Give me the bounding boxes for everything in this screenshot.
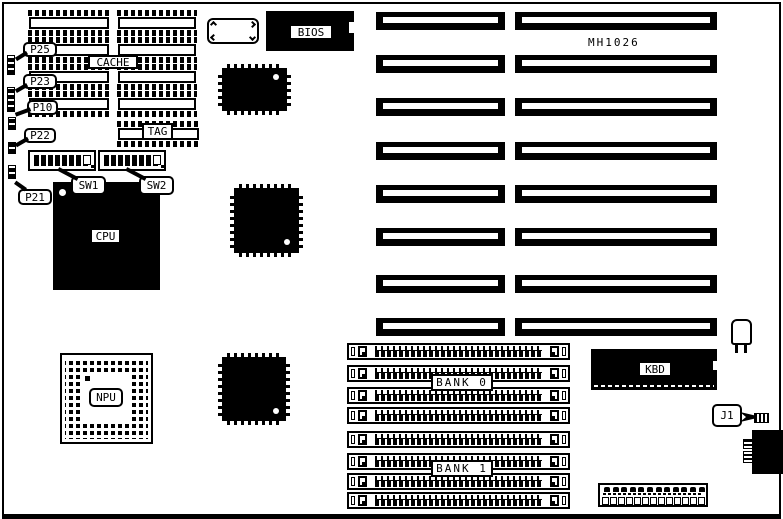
- chip-notch: [713, 361, 717, 370]
- connector-pin: [664, 487, 670, 492]
- socket-clip: [358, 495, 367, 506]
- connector-socket: [650, 497, 657, 505]
- isa-slot-segment: [515, 318, 717, 336]
- socket-clip: [358, 434, 367, 445]
- simm-socket: [347, 407, 570, 424]
- chip-pins: [227, 353, 281, 357]
- connector-stripes: [603, 493, 703, 495]
- cpu-label-text: CPU: [96, 231, 116, 242]
- simm-socket: [347, 431, 570, 448]
- isa-slot-segment: [515, 185, 717, 203]
- kbd-label-text: KBD: [645, 364, 665, 375]
- chip-pins: [218, 73, 222, 106]
- corner-mark: [210, 21, 217, 28]
- connector-pin: [647, 487, 653, 492]
- socket-clip: [550, 434, 559, 445]
- isa-slot-segment: [376, 185, 505, 203]
- isa-slot-segment: [515, 12, 717, 30]
- oscillator: [207, 18, 259, 44]
- connector-socket: [618, 497, 625, 505]
- chip-body: [118, 71, 196, 83]
- socket-end: [351, 496, 355, 505]
- callout-p22: P22: [24, 128, 56, 143]
- socket-clip: [550, 476, 559, 487]
- connector-tab: [743, 451, 753, 463]
- connector-socket: [698, 497, 705, 505]
- chip-pins: [117, 141, 200, 147]
- bios-label-text: BIOS: [298, 27, 325, 38]
- socket-clip: [358, 456, 367, 467]
- connector-pin: [681, 487, 687, 492]
- connector-pin: [604, 487, 610, 492]
- crystal: [731, 319, 752, 345]
- socket-clip: [358, 410, 367, 421]
- socket-clip: [550, 368, 559, 379]
- pin1-mark: [85, 376, 90, 381]
- chip-pins: [287, 73, 291, 106]
- cache-label-text: CACHE: [96, 57, 129, 68]
- switch-endbox: [153, 155, 161, 165]
- chip-pins: [239, 253, 294, 257]
- socket-end: [562, 435, 566, 444]
- chip-pins: [117, 37, 197, 43]
- chip-notch: [349, 22, 354, 33]
- crystal-leg: [735, 345, 738, 353]
- socket-clip: [358, 390, 367, 401]
- connector-socket: [658, 497, 665, 505]
- chip-body: [29, 17, 109, 29]
- socket-end: [562, 347, 566, 356]
- chip-pins: [239, 184, 294, 188]
- chip-pins: [117, 91, 197, 97]
- connector-socket: [682, 497, 689, 505]
- pin1-dot: [59, 189, 66, 196]
- cache-label: CACHE: [88, 55, 138, 69]
- connector-socket: [602, 497, 609, 505]
- callout-p25-text: P25: [30, 44, 50, 55]
- chip-pins: [230, 193, 234, 248]
- qfp-chip-top: [222, 68, 287, 111]
- connector-pin: [638, 487, 644, 492]
- socket-end: [562, 391, 566, 400]
- corner-mark: [210, 34, 217, 41]
- isa-slot-segment: [376, 12, 505, 30]
- bios-label: BIOS: [290, 25, 332, 39]
- kbd-label: KBD: [639, 362, 671, 376]
- socket-end: [351, 347, 355, 356]
- isa-slot-segment: [376, 318, 505, 336]
- socket-clip: [550, 346, 559, 357]
- socket-clip: [550, 495, 559, 506]
- dip-chip: [28, 10, 110, 36]
- corner-mark: [249, 34, 256, 41]
- tag-label-text: TAG: [148, 126, 168, 137]
- chip-pins: [117, 30, 197, 36]
- chip-pins: [28, 30, 110, 36]
- connector-pin: [630, 487, 636, 492]
- socket-end: [351, 477, 355, 486]
- socket-contacts: [375, 410, 542, 421]
- socket-contacts: [375, 346, 542, 357]
- socket-clip: [358, 368, 367, 379]
- socket-end: [351, 435, 355, 444]
- socket-contacts: [375, 476, 542, 487]
- isa-slot-segment: [515, 275, 717, 293]
- power-connector: [598, 483, 708, 507]
- crystal-leg: [744, 345, 747, 353]
- chip-pins: [117, 84, 197, 90]
- j1-label: J1: [712, 404, 742, 427]
- simm-socket: [347, 343, 570, 360]
- socket-end: [562, 477, 566, 486]
- tag-label: TAG: [142, 123, 173, 140]
- callout-p22-text: P22: [30, 130, 50, 141]
- callout-sw2: SW2: [139, 176, 174, 195]
- qfp-chip-bottom: [222, 357, 286, 421]
- chip-body: [118, 98, 196, 110]
- simm-socket: [347, 492, 570, 509]
- isa-slot-segment: [515, 98, 717, 116]
- socket-end: [562, 369, 566, 378]
- isa-slot-segment: [515, 55, 717, 73]
- isa-slot-segment: [376, 142, 505, 160]
- connector-socket: [666, 497, 673, 505]
- bank0-label: BANK 0: [431, 374, 493, 391]
- callout-p10-text: P10: [33, 102, 53, 113]
- contact-blocks: [375, 438, 542, 445]
- isa-slot-segment: [515, 142, 717, 160]
- socket-clip: [358, 476, 367, 487]
- chip-pins: [299, 193, 303, 248]
- pin1-dot: [273, 74, 279, 80]
- connector-pin: [673, 487, 679, 492]
- switch-notch: [91, 165, 94, 168]
- j1-label-text: J1: [720, 410, 733, 421]
- socket-clip: [550, 456, 559, 467]
- j1-connector: [754, 413, 769, 423]
- bank1-label-text: BANK 1: [436, 463, 488, 474]
- socket-end: [562, 411, 566, 420]
- npu-socket: NPU: [60, 353, 153, 444]
- callout-p23-text: P23: [30, 76, 50, 87]
- callout-p25: P25: [23, 42, 57, 57]
- bank1-label: BANK 1: [431, 460, 493, 477]
- contact-blocks: [375, 394, 542, 401]
- callout-p23: P23: [23, 74, 57, 89]
- connector-socket: [634, 497, 641, 505]
- callout-sw1: SW1: [71, 176, 106, 195]
- chip-pins: [286, 362, 290, 416]
- connector-socket: [690, 497, 697, 505]
- connector-socket: [642, 497, 649, 505]
- contact-blocks: [375, 480, 542, 487]
- chip-pins: [28, 91, 110, 97]
- switch-cells: [104, 155, 159, 166]
- isa-slot-segment: [376, 228, 505, 246]
- socket-contacts: [375, 495, 542, 506]
- connector-socket: [626, 497, 633, 505]
- chip-pins: [218, 362, 222, 416]
- socket-contacts: [375, 434, 542, 445]
- connector-pin: [690, 487, 696, 492]
- cpu-label: CPU: [91, 229, 120, 243]
- socket-clip: [550, 390, 559, 401]
- callout-p21-text: P21: [25, 192, 45, 203]
- socket-end: [562, 496, 566, 505]
- pin-header: [7, 87, 15, 112]
- connector-pin: [656, 487, 662, 492]
- dip-chip: [117, 10, 197, 36]
- contact-blocks: [375, 350, 542, 357]
- contact-blocks: [375, 499, 542, 506]
- socket-end: [351, 411, 355, 420]
- dip-switch-sw2: [98, 150, 166, 171]
- switch-notch: [161, 165, 164, 168]
- contact-blocks: [375, 414, 542, 421]
- pin1-dot: [284, 239, 290, 245]
- chip-pins: [227, 421, 281, 425]
- bank0-label-text: BANK 0: [436, 377, 488, 388]
- socket-end: [351, 457, 355, 466]
- chip-pins: [227, 64, 282, 68]
- connector-pin: [613, 487, 619, 492]
- npu-label-text: NPU: [96, 392, 116, 403]
- callout-p21: P21: [18, 189, 52, 205]
- corner-mark: [249, 21, 256, 28]
- switch-cells: [34, 155, 89, 166]
- board-model-label: MH1026: [588, 36, 640, 49]
- pin-header: [8, 117, 16, 130]
- socket-end: [351, 391, 355, 400]
- chip-pins: [227, 111, 282, 115]
- motherboard-diagram: BIOS CPU NPU KBD: [0, 0, 783, 519]
- chip-body: [118, 17, 196, 29]
- qfp-chip-middle: [234, 188, 299, 253]
- connector-pin: [621, 487, 627, 492]
- pin-header: [7, 55, 15, 75]
- pin1-dot: [273, 408, 279, 414]
- socket-clip: [358, 346, 367, 357]
- callout-p10: P10: [27, 100, 58, 115]
- switch-endbox: [83, 155, 91, 165]
- chip-pins: [28, 10, 110, 16]
- chip-pins: [117, 111, 197, 117]
- connector-socket: [674, 497, 681, 505]
- isa-slot-segment: [376, 98, 505, 116]
- callout-sw1-text: SW1: [79, 180, 99, 191]
- isa-slot-segment: [515, 228, 717, 246]
- keyboard-connector: [752, 430, 783, 474]
- pin-header: [8, 165, 16, 179]
- socket-end: [562, 457, 566, 466]
- callout-sw2-text: SW2: [147, 180, 167, 191]
- socket-contacts: [375, 390, 542, 401]
- socket-end: [351, 369, 355, 378]
- connector-tab: [743, 439, 753, 449]
- connector-socket: [610, 497, 617, 505]
- chip-pins: [117, 10, 197, 16]
- npu-label: NPU: [89, 388, 123, 407]
- connector-pin: [699, 487, 705, 492]
- dip-chip: [117, 91, 197, 117]
- socket-clip: [550, 410, 559, 421]
- isa-slot-segment: [376, 275, 505, 293]
- isa-slot-segment: [376, 55, 505, 73]
